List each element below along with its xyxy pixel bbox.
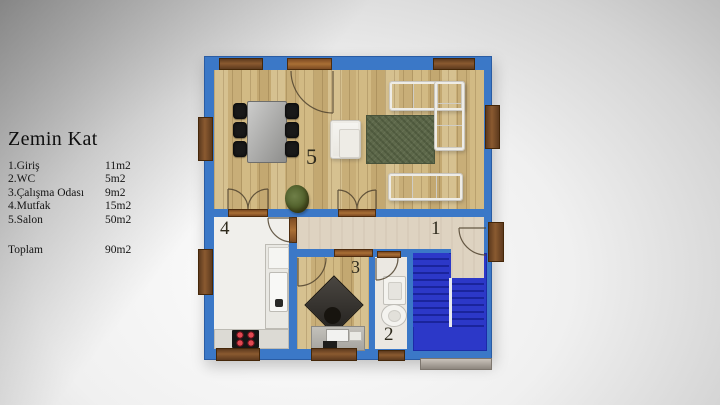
room-label-wc: 2 (384, 325, 394, 344)
legend-total-area: 90m2 (105, 244, 131, 257)
legend-row: 2.WC 5m2 (8, 173, 168, 186)
room-label-calisma: 3 (351, 258, 360, 276)
room-label-salon: 5 (306, 146, 317, 168)
legend-room-label: 4.Mutfak (8, 200, 50, 212)
legend-room-label: 5.Salon (8, 214, 43, 226)
entry-step (420, 358, 492, 370)
legend-room-area: 50m2 (105, 214, 131, 227)
legend-row: 5.Salon 50m2 (8, 214, 168, 227)
legend-room-area: 5m2 (105, 173, 125, 186)
door-swing-arcs (205, 57, 493, 361)
legend-room-label: 2.WC (8, 173, 35, 185)
plan-title: Zemin Kat (8, 128, 168, 151)
legend: Zemin Kat 1.Giriş 11m2 2.WC 5m2 3.Çalışm… (8, 128, 168, 257)
room-label-mutfak: 4 (220, 219, 230, 238)
legend-row: 3.Çalışma Odası 9m2 (8, 187, 168, 200)
floor-plan-scene: Zemin Kat 1.Giriş 11m2 2.WC 5m2 3.Çalışm… (0, 0, 720, 405)
legend-room-label: 1.Giriş (8, 160, 40, 172)
floor-plan: 5 4 1 3 2 (204, 56, 492, 360)
legend-row: 4.Mutfak 15m2 (8, 200, 168, 213)
legend-row: 1.Giriş 11m2 (8, 160, 168, 173)
legend-room-label: 3.Çalışma Odası (8, 187, 84, 199)
legend-total-row: Toplam 90m2 (8, 244, 168, 257)
legend-room-area: 15m2 (105, 200, 131, 213)
legend-room-area: 11m2 (105, 160, 131, 173)
room-label-giris: 1 (431, 219, 441, 238)
legend-room-area: 9m2 (105, 187, 125, 200)
legend-total-label: Toplam (8, 244, 43, 256)
